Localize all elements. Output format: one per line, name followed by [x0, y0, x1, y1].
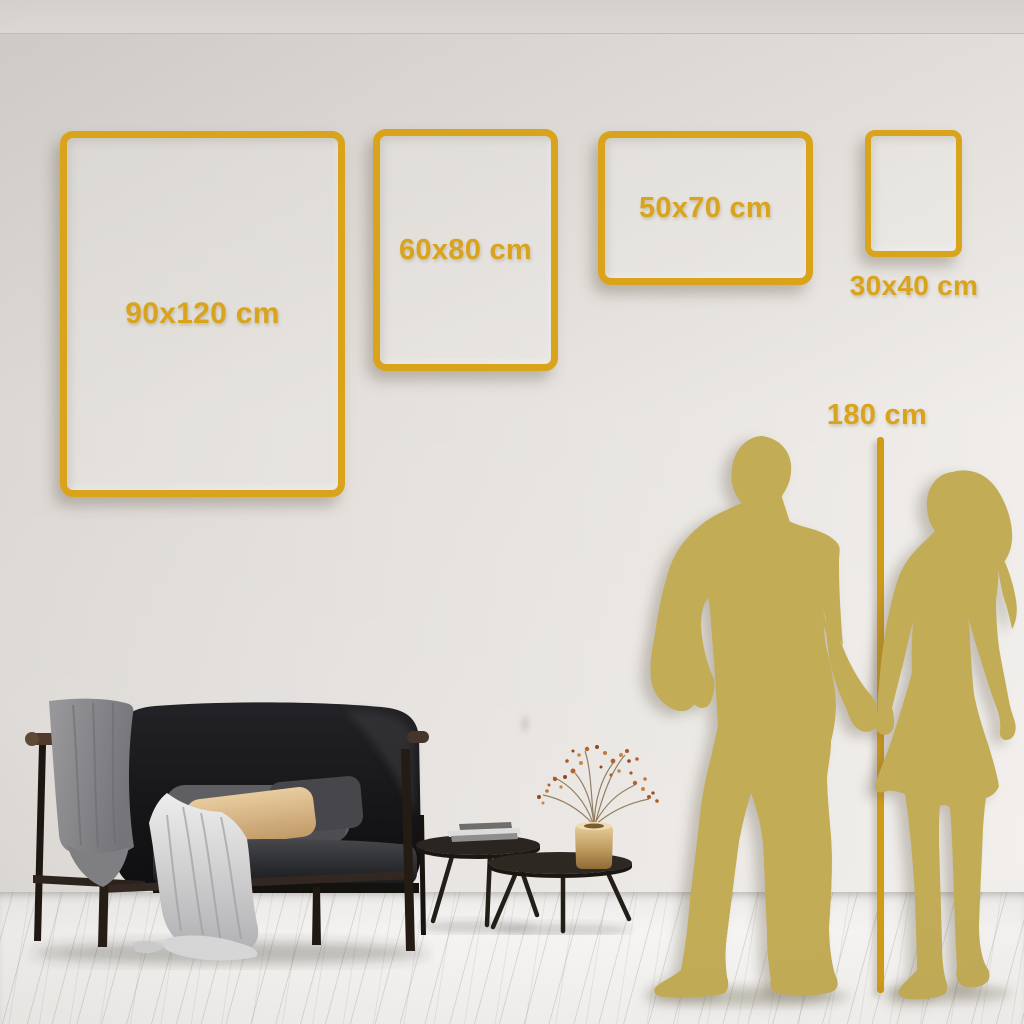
frame-90x120-label: 90x120 cm [125, 297, 280, 331]
sofa [15, 695, 435, 970]
coffee-tables [415, 735, 665, 935]
sofa-armrail-left-cap [25, 732, 39, 746]
frame-30x40 [865, 130, 962, 257]
frame-90x120: 90x120 cm [60, 131, 345, 497]
ceiling-line [0, 0, 1024, 34]
brass-vase-opening [584, 824, 604, 829]
frame-50x70-label: 50x70 cm [639, 192, 772, 225]
sofa-middle-leg [312, 887, 321, 945]
height-reference-label: 180 cm [791, 399, 963, 432]
woman-silhouette [874, 470, 1015, 999]
gray-blanket [49, 699, 134, 857]
brass-vase [575, 825, 613, 869]
table-small-legs [493, 871, 629, 931]
poster-size-guide-scene: 90x120 cm 60x80 cm 50x70 cm 30x40 cm 180… [0, 0, 1024, 1024]
frame-50x70: 50x70 cm [598, 131, 813, 285]
woman-hair-strand [996, 548, 1017, 629]
frame-30x40-label: 30x40 cm [826, 270, 1002, 302]
frame-60x80-label: 60x80 cm [399, 234, 532, 267]
frame-60x80: 60x80 cm [373, 129, 558, 371]
sofa-back-leg [34, 745, 46, 941]
couple-silhouettes [630, 430, 1024, 1010]
man-silhouette-body [650, 436, 876, 997]
